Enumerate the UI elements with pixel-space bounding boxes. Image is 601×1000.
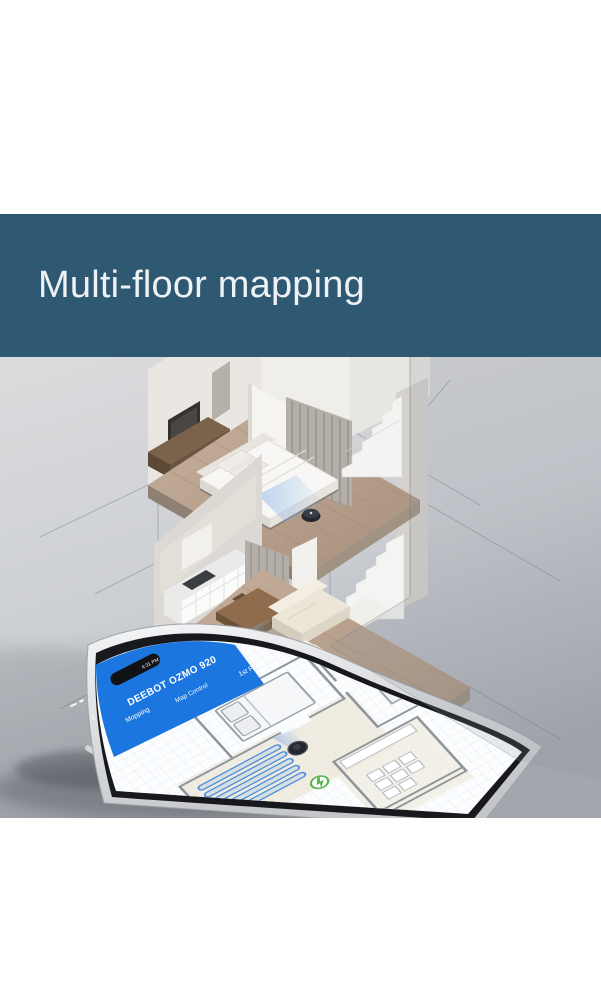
product-scene: 4:31 PM ‹ DEEBOT OZMO 920 Map Control Mo… (0, 357, 601, 818)
banner-title: Multi-floor mapping (38, 264, 365, 307)
scene-canvas: 4:31 PM ‹ DEEBOT OZMO 920 Map Control Mo… (0, 357, 601, 818)
top-white-band (0, 0, 601, 214)
feature-banner: Multi-floor mapping (0, 214, 601, 357)
bottom-white-band (0, 818, 601, 1000)
marketing-image: Multi-floor mapping (0, 0, 601, 1000)
